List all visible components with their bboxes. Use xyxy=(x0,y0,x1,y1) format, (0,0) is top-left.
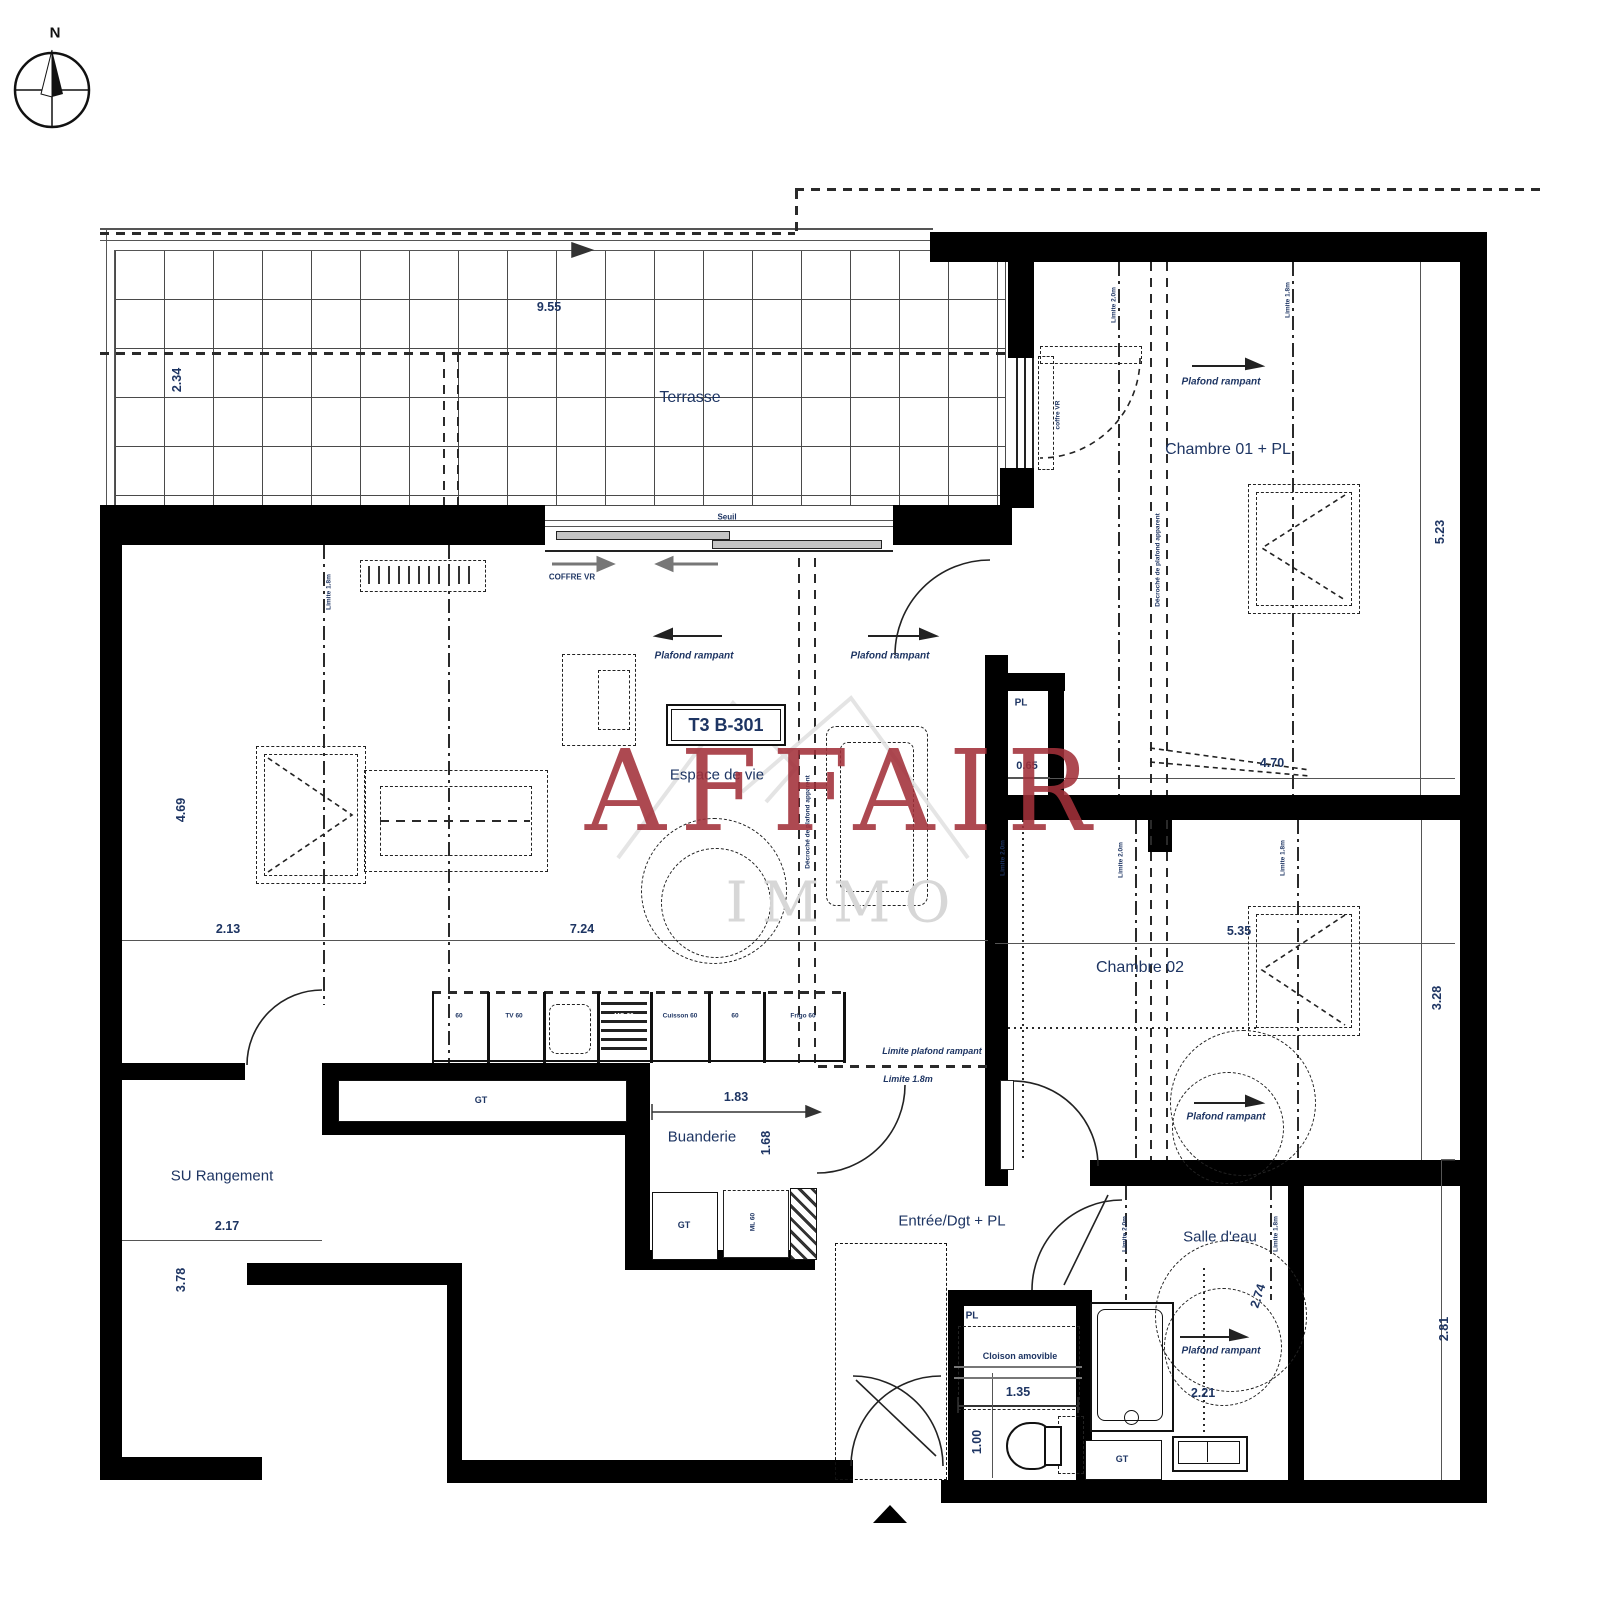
dim-espace-gauche: 2.13 xyxy=(216,922,240,936)
dim-chambre02-hauteur: 3.28 xyxy=(1430,986,1444,1010)
dim-terrasse-profondeur: 2.34 xyxy=(170,368,184,392)
kitchen-cell-label: 60 xyxy=(455,1013,462,1020)
dim-wc-largeur: 1.00 xyxy=(970,1430,984,1454)
terrasse-edge xyxy=(100,228,933,230)
dim-espace-hauteur: 4.69 xyxy=(174,798,188,822)
sofa-left-split xyxy=(380,820,530,822)
dim-chambre01-hauteur: 5.23 xyxy=(1433,520,1447,544)
dim-rangement-hauteur: 3.78 xyxy=(174,1268,188,1292)
kitchen-cell-label: MO 60 xyxy=(614,1013,634,1020)
terrasse-joint xyxy=(457,353,459,505)
placard-chambre01-label: PL xyxy=(1015,698,1028,709)
seuil-label: Seuil xyxy=(717,513,736,522)
limite-18-entree-label: Limite 1.8m xyxy=(883,1074,933,1084)
kitchen-cell-label: Cuisson 60 xyxy=(663,1013,698,1020)
door-arc-hall xyxy=(895,560,990,655)
room-label-salledeau: Salle d'eau xyxy=(1183,1229,1257,1246)
vanity-basin xyxy=(1178,1441,1240,1464)
plafond-rampant-espace-droite: Plafond rampant xyxy=(851,651,930,662)
dim-chambre02-largeur: 5.35 xyxy=(1227,924,1251,938)
sliding-door-leaf xyxy=(712,540,882,549)
terrasse-tiles xyxy=(115,250,1006,506)
lave-linge-label: ML 60 xyxy=(750,1213,757,1231)
room-label-rangement: SU Rangement xyxy=(171,1168,274,1185)
sliding-door-sill xyxy=(545,526,893,527)
plafond-rampant-espace-gauche: Plafond rampant xyxy=(655,651,734,662)
shower-tray-inner xyxy=(1097,1309,1163,1421)
kitchen-divider xyxy=(432,992,434,1063)
wall-left xyxy=(100,505,122,1480)
dim-line xyxy=(122,1240,322,1241)
limite-plafond-rampant-label: Limite plafond rampant xyxy=(882,1046,982,1056)
wall-bottom-left xyxy=(100,1457,262,1480)
limite-line xyxy=(1118,262,1120,795)
kitchen-divider xyxy=(543,992,546,1063)
sliding-door-track xyxy=(545,550,893,552)
terrasse-edge xyxy=(100,240,933,241)
limite-18-chambre02: Limite 1.8m xyxy=(1280,840,1287,876)
kitchen-cell-label: 60 xyxy=(731,1013,738,1020)
room-label-chambre02: Chambre 02 xyxy=(1096,959,1184,977)
wall-chambre01-west-upper xyxy=(1008,262,1034,358)
radiator-fins xyxy=(368,566,476,584)
watermark-title: AFFAIR xyxy=(585,727,1105,857)
kitchen-divider xyxy=(650,992,653,1063)
kitchen-divider xyxy=(763,992,766,1063)
tv-cabinet-inner xyxy=(598,670,630,730)
dim-droite-hauteur: 2.81 xyxy=(1437,1317,1451,1341)
door-leaf-chambre02 xyxy=(1000,1080,1014,1170)
limite-plafond-line xyxy=(818,1065,988,1068)
cloison-amovible-line xyxy=(954,1366,1082,1379)
entrance-triangle xyxy=(873,1505,907,1523)
coffre-vr-fenetre-label: coffre VR xyxy=(1055,401,1062,430)
wall-step-h xyxy=(247,1263,462,1285)
kitchen-cell-label: Frigo 60 xyxy=(790,1013,815,1020)
limite-line xyxy=(1022,820,1024,1160)
watermark-subtitle: IMMO xyxy=(726,871,965,936)
sliding-arrows xyxy=(552,558,718,570)
wall-top xyxy=(930,232,1487,262)
decroche-line xyxy=(1166,262,1168,795)
kitchen-counter-front xyxy=(432,1060,845,1062)
terrasse-edge xyxy=(106,228,107,507)
door-arc-salledeau xyxy=(1032,1200,1122,1290)
room-label-entree: Entrée/Dgt + PL xyxy=(898,1213,1005,1230)
property-line xyxy=(795,188,1540,191)
placard-entree-label: PL xyxy=(966,1311,979,1322)
property-line xyxy=(100,232,795,235)
dim-buanderie-hauteur: 1.68 xyxy=(759,1131,773,1155)
dim-line xyxy=(995,943,1455,944)
kitchen-divider xyxy=(487,992,490,1063)
compass-north-label: N xyxy=(50,25,61,42)
door-leaf-salledeau xyxy=(1064,1195,1108,1285)
limite-18-salledeau: Limite 1.8m xyxy=(1273,1216,1280,1252)
wall-hatched xyxy=(790,1188,817,1260)
chambre01-window xyxy=(1032,358,1034,468)
decroche-line xyxy=(1150,262,1152,795)
limite-20-chambre01: Limite 2.0m xyxy=(1111,287,1118,323)
kitchen-divider xyxy=(597,992,600,1063)
limite-18-chambre01: Limite 1.8m xyxy=(1285,282,1292,318)
dim-line xyxy=(122,940,988,941)
gt-salledeau-label: GT xyxy=(1116,1454,1129,1464)
room-label-chambre01: Chambre 01 + PL xyxy=(1165,441,1291,459)
kitchen-counter-edge xyxy=(432,991,845,994)
property-line xyxy=(795,190,798,234)
wardrobe-espace-inner xyxy=(264,754,358,876)
plafond-rampant-chambre01: Plafond rampant xyxy=(1182,377,1261,388)
limite-18-espace: Limite 1.8m xyxy=(326,574,333,610)
wall-terrasse-left xyxy=(100,505,545,545)
dim-line xyxy=(1421,820,1422,1160)
kitchen-cell-label: TV 60 xyxy=(505,1013,522,1020)
wall-step-v xyxy=(447,1263,462,1480)
terrasse-limite-line xyxy=(100,352,1005,355)
kitchen-sink xyxy=(549,1004,591,1054)
compass-icon xyxy=(15,50,89,127)
decroche-chambre01: Décroché de plafond apparent xyxy=(1155,513,1162,607)
sliding-door-leaf xyxy=(556,531,730,540)
shower-drain xyxy=(1124,1410,1139,1425)
wall-bottom-right xyxy=(941,1480,1460,1503)
plafond-rampant-salledeau: Plafond rampant xyxy=(1182,1346,1261,1357)
coffre-vr-label: COFFRE VR xyxy=(549,573,595,582)
wall-wc-top xyxy=(948,1290,1076,1306)
terrasse-edge xyxy=(114,250,115,507)
room-label-terrasse: Terrasse xyxy=(659,389,720,407)
wall-rangement-top xyxy=(122,1063,245,1080)
limite-line xyxy=(1135,820,1137,1160)
toilet-tank xyxy=(1044,1426,1062,1466)
chambre01-window xyxy=(1016,358,1018,468)
gt-buanderie-label: GT xyxy=(678,1220,691,1230)
dim-rangement-largeur: 2.17 xyxy=(215,1219,239,1233)
gt-espace-label: GT xyxy=(475,1095,488,1105)
chambre01-window xyxy=(1024,358,1026,468)
door-leaf-chambre01 xyxy=(1040,346,1142,364)
kitchen-appliance-grille xyxy=(601,1002,647,1054)
dim-terrasse-largeur: 9.55 xyxy=(537,300,561,314)
limite-20-chambre02-b: Limite 2.0m xyxy=(1118,842,1125,878)
wall-right xyxy=(1460,232,1487,1503)
door-arc-buanderie xyxy=(817,1085,905,1173)
dim-line xyxy=(1420,262,1421,795)
room-label-buanderie: Buanderie xyxy=(668,1129,736,1146)
dim-espace-largeur: 7.24 xyxy=(570,922,594,936)
limite-20-salledeau: Limite 2.0m xyxy=(1122,1216,1129,1252)
plafond-rampant-chambre02: Plafond rampant xyxy=(1187,1112,1266,1123)
vanity-split xyxy=(1207,1441,1208,1462)
kitchen-divider xyxy=(843,992,846,1063)
wall-chambre01-west-lower xyxy=(1000,468,1034,508)
wardrobe-chambre02-inner xyxy=(1256,914,1352,1028)
floor-plan: N 9.55 2.34 Terrasse Seuil COFFRE VR cof… xyxy=(0,0,1600,1600)
entree-zone xyxy=(835,1243,947,1480)
dim-buanderie-largeur: 1.83 xyxy=(724,1090,748,1104)
wall-placard-top xyxy=(1008,673,1065,691)
wall-terrasse-right xyxy=(893,505,1012,545)
coffre-vr-box xyxy=(1038,356,1054,470)
terrasse-edge xyxy=(115,250,1008,251)
decroche-line xyxy=(1166,820,1168,1160)
zone-circle-chambre02-inner xyxy=(1172,1072,1284,1184)
kitchen-divider xyxy=(708,992,711,1063)
limite-line xyxy=(1008,1027,1258,1029)
terrasse-joint xyxy=(443,353,445,505)
decroche-line xyxy=(1150,820,1152,1160)
wardrobe-chambre01-inner xyxy=(1256,492,1352,606)
cloison-amovible-label: Cloison amovible xyxy=(983,1351,1058,1361)
wall-buanderie-west xyxy=(625,1080,650,1262)
dim-salledeau-largeur: 2.21 xyxy=(1191,1386,1215,1400)
dim-cloison-largeur: 1.35 xyxy=(1006,1385,1030,1399)
door-arc-chambre02 xyxy=(1013,1081,1098,1166)
door-arc-rangement xyxy=(247,990,322,1065)
dim-chambre01-largeur: 4.70 xyxy=(1260,756,1284,770)
wall-bottom-center xyxy=(447,1460,853,1483)
